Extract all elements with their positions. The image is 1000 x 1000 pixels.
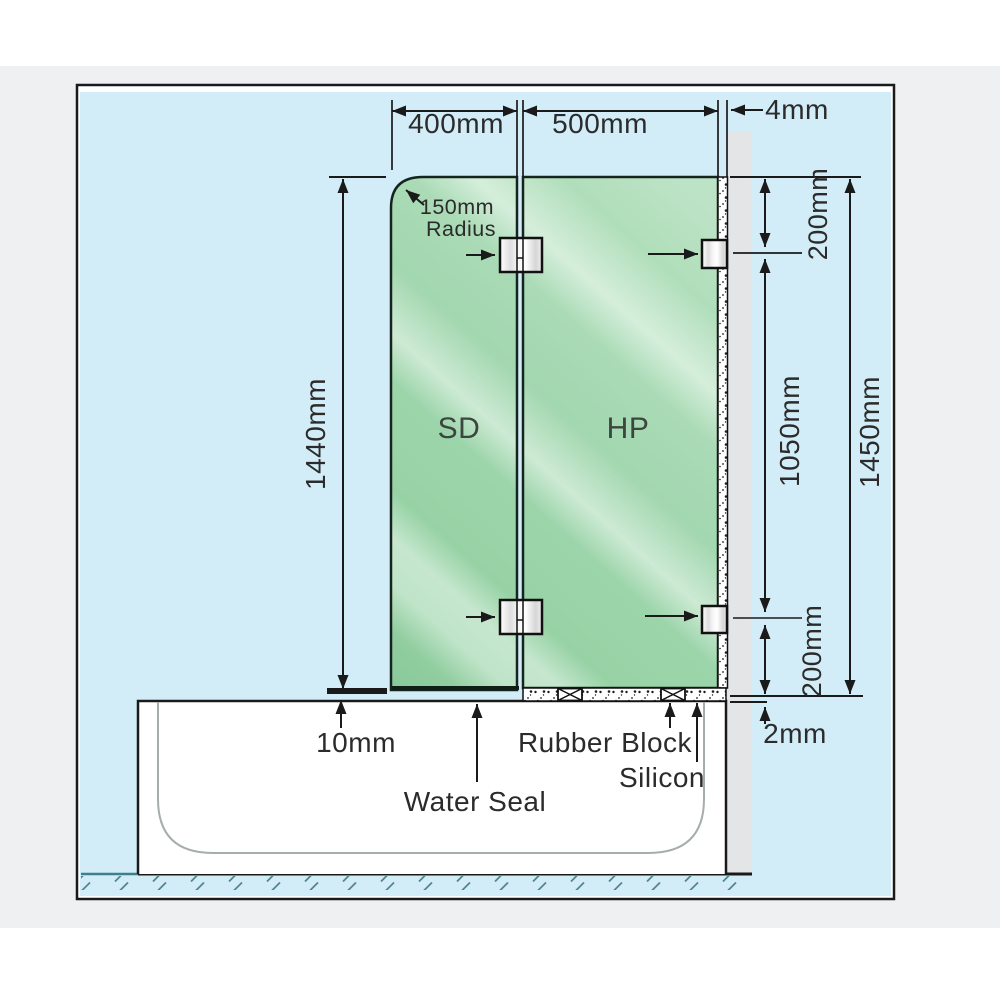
dim-label-200mm-bottom: 200mm xyxy=(797,605,827,698)
dim-label-1450mm: 1450mm xyxy=(854,376,885,488)
floor-hatching xyxy=(81,876,752,890)
rubber-block-symbol xyxy=(558,689,582,701)
dim-label-1440mm: 1440mm xyxy=(300,378,331,490)
dim-label-10mm: 10mm xyxy=(316,727,396,758)
dim-400mm: 400mm xyxy=(392,108,517,139)
dim-label-400mm: 400mm xyxy=(408,108,504,139)
dim-label-4mm: 4mm xyxy=(765,94,829,125)
dim-label-1050mm: 1050mm xyxy=(774,375,805,487)
wall-bracket-top xyxy=(702,240,727,268)
dim-label-200mm-top: 200mm xyxy=(803,168,833,261)
installation-diagram: 400mm 500mm 4mm 1440mm 200mm 1050mm 200m… xyxy=(0,0,1000,1000)
hinge-top xyxy=(500,238,542,272)
rubber-block-text: Rubber Block xyxy=(518,727,693,758)
panel-label-hp: HP xyxy=(607,412,650,445)
water-seal-text: Water Seal xyxy=(404,786,546,817)
wall-channel xyxy=(727,131,751,876)
silicon-bottom-strip xyxy=(523,688,726,701)
radius-word-text: Radius xyxy=(426,217,496,241)
panel-label-sd: SD xyxy=(438,412,481,445)
wall-bracket-bottom xyxy=(702,606,727,633)
radius-value-text: 150mm xyxy=(420,195,494,219)
dim-label-500mm: 500mm xyxy=(552,108,648,139)
hinge-bottom xyxy=(500,600,542,634)
dim-label-2mm: 2mm xyxy=(763,718,827,749)
rubber-block-symbol xyxy=(661,689,685,701)
silicon-text: Silicon xyxy=(619,762,705,793)
screenshot-root: 400mm 500mm 4mm 1440mm 200mm 1050mm 200m… xyxy=(0,0,1000,1000)
